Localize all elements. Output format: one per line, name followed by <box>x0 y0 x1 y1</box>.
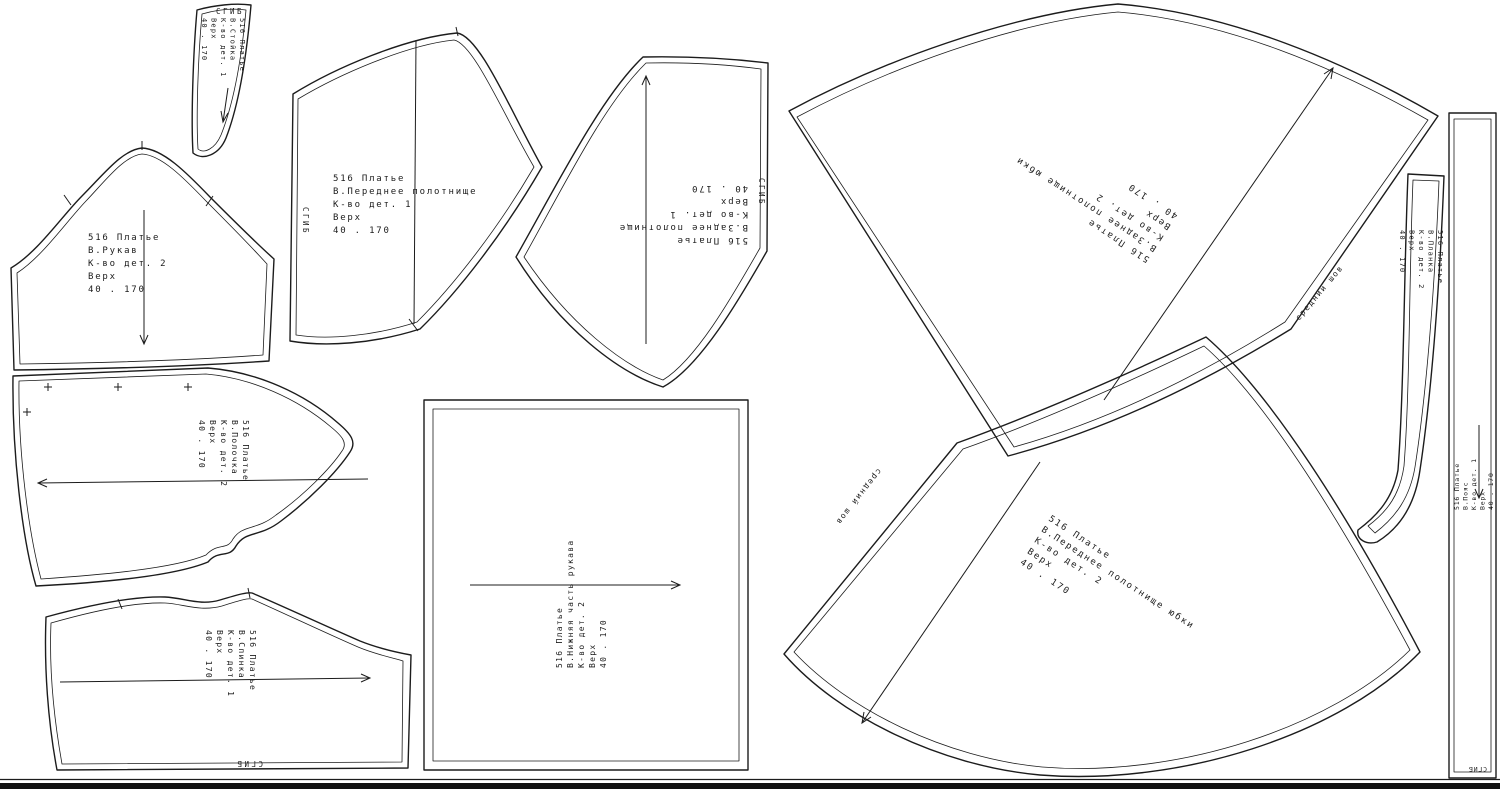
piece-label-line: 40 . 170 <box>197 420 206 469</box>
pattern-piece-stoika: СГИБ 516 Платье В.Стойка К-во дет. 1 Вер… <box>192 4 251 156</box>
notch-mark <box>64 195 71 205</box>
piece-label-line: В.Пояс <box>1462 482 1470 510</box>
notch-mark <box>409 319 418 331</box>
piece-label-line: Верх <box>88 272 117 282</box>
piece-label-line: В.Спинка <box>237 630 246 679</box>
piece-label-line: 516 Платье <box>555 607 564 668</box>
center-seam-label-group: средний шов <box>1294 263 1346 322</box>
plus-mark <box>114 383 122 391</box>
piece-label-line: К-во дет. 1 <box>333 200 412 210</box>
piece-label-line: Верх <box>208 420 217 444</box>
grain-line-arrow <box>140 210 148 344</box>
piece-label-line: К-во дет. 2 <box>577 601 586 668</box>
fold-label-group: СГИБ <box>1468 765 1487 773</box>
piece-label-line: К-во дет. 2 <box>88 259 167 269</box>
seam-line <box>19 374 344 579</box>
piece-label-line: 40 . 170 <box>599 619 608 668</box>
piece-label: 516 Платье В.Рукав К-во дет. 2 Верх 40 .… <box>88 233 167 295</box>
pattern-piece-perednee: СГИБ 516 Платье В.Переднее полотнище К-в… <box>290 27 542 344</box>
plus-mark <box>44 383 52 391</box>
piece-label-line: 516 Платье <box>241 420 250 481</box>
piece-label-line: 40 . 170 <box>204 630 213 679</box>
seam-line <box>1454 119 1491 772</box>
center-seam-label: средний шов <box>1294 263 1346 322</box>
fold-label: СГИБ <box>301 207 310 235</box>
grain-line-arrow <box>642 76 650 344</box>
grain-line-arrow <box>862 462 1040 723</box>
piece-label-line: 516 Платье <box>238 18 246 72</box>
piece-label: 516 Платье В.Заднее полотнище юбки К-во … <box>1007 121 1180 263</box>
piece-label: 516 Платье В.Переднее полотнище К-во дет… <box>333 174 477 236</box>
piece-label-line: Верх <box>1408 230 1416 252</box>
grain-line-arrow <box>470 581 680 589</box>
piece-label-line: К-во дет. 2 <box>219 420 228 487</box>
piece-label-line: 516 Платье <box>1436 230 1444 284</box>
piece-label-line: К-во дет. 2 <box>1417 230 1425 290</box>
pattern-piece-rukav: 516 Платье В.Рукав К-во дет. 2 Верх 40 .… <box>11 141 274 370</box>
piece-label-line: Верх <box>719 196 748 206</box>
piece-label-line: 40 . 170 <box>1398 230 1406 273</box>
plus-mark <box>23 408 31 416</box>
piece-label-line: К-во дет. 1 <box>1470 458 1478 510</box>
piece-label-line: В.Переднее полотнище юбки <box>1039 524 1196 632</box>
cut-line <box>1449 113 1496 778</box>
piece-label-line: 40 . 170 <box>1487 472 1495 510</box>
pattern-piece-planka: 516 Платье В.Планка К-во дет. 2 Верх 40 … <box>1358 174 1444 543</box>
plus-mark <box>184 383 192 391</box>
piece-label-line: 516 Платье <box>248 630 257 691</box>
piece-label-line: К-во дет. 1 <box>669 209 748 219</box>
piece-label-line: В.Полочка <box>230 420 239 475</box>
pattern-piece-poyas: СГИБ 516 Платье В.Пояс К-во дет. 1 Верх … <box>1449 113 1496 778</box>
piece-label: 516 Платье В.Переднее полотнище юбки К-в… <box>1018 514 1203 664</box>
piece-label-line: В.Переднее полотнище <box>333 187 477 197</box>
piece-label-line: 516 Платье <box>1453 463 1461 510</box>
fold-label-group: СГИБ <box>757 178 766 206</box>
piece-label-line: В.Стойка <box>229 18 237 61</box>
cut-line <box>13 368 353 586</box>
center-seam-label-group: средний шов <box>834 467 884 527</box>
piece-label: 516 Платье В.Пояс К-во дет. 1 Верх 40 . … <box>1453 458 1495 510</box>
piece-label: 516 Платье В.Спинка К-во дет. 1 Верх 40 … <box>204 630 257 697</box>
bottom-bar <box>0 783 1500 789</box>
center-line <box>414 40 416 324</box>
fold-label: СГИБ <box>1468 765 1487 773</box>
cut-line <box>516 57 768 387</box>
piece-label-line: В.Заднее полотнище <box>618 222 748 232</box>
piece-label-line: В.Нижняя часть рукава <box>566 540 575 668</box>
grain-line-arrow <box>60 674 370 682</box>
piece-label-line: 40 . 170 <box>88 285 146 295</box>
seam-line <box>797 12 1428 447</box>
pattern-layout-page: СГИБ 516 Платье В.Стойка К-во дет. 1 Вер… <box>0 0 1500 789</box>
piece-label-line: Верх <box>1479 491 1487 510</box>
grain-line-arrow <box>38 479 368 487</box>
piece-label-line: 40 . 170 <box>690 183 748 193</box>
seam-line <box>524 63 761 380</box>
piece-label: 516 Платье В.Полочка К-во дет. 2 Верх 40… <box>197 420 250 487</box>
piece-label: 516 Платье В.Нижняя часть рукава К-во де… <box>555 540 608 668</box>
pattern-piece-perednee-yubki: средний шов 516 Платье В.Переднее полотн… <box>784 337 1420 776</box>
fold-label: СГИБ <box>757 178 766 206</box>
piece-label-line: 40 . 170 <box>200 18 208 61</box>
fold-label-group: СГИБ <box>235 759 263 768</box>
piece-label-line: 516 Платье <box>676 235 748 245</box>
piece-label-line: В.Заднее полотнище юбки <box>1013 154 1158 254</box>
piece-label-line: К-во дет. 1 <box>219 18 227 78</box>
piece-label: 516 Платье В.Заднее полотнище К-во дет. … <box>618 183 748 245</box>
center-seam-label: средний шов <box>834 467 884 527</box>
pattern-piece-polochka: 516 Платье В.Полочка К-во дет. 2 Верх 40… <box>13 368 368 586</box>
fold-label-group: СГИБ <box>301 207 310 235</box>
piece-label-line: В.Рукав <box>88 246 139 256</box>
pattern-piece-spinka: СГИБ 516 Платье В.Спинка К-во дет. 1 Вер… <box>45 588 411 770</box>
fold-label: СГИБ <box>216 7 244 16</box>
notch-mark <box>456 27 458 36</box>
piece-label-line: Верх <box>210 18 218 40</box>
piece-label-line: Верх <box>215 630 224 654</box>
piece-label-line: 516 Платье <box>88 233 160 243</box>
piece-label-line: К-во дет. 1 <box>226 630 235 697</box>
pattern-piece-nizhnyaya: 516 Платье В.Нижняя часть рукава К-во де… <box>424 400 748 770</box>
piece-label: 516 Платье В.Стойка К-во дет. 1 Верх 40 … <box>200 18 246 78</box>
pattern-canvas: СГИБ 516 Платье В.Стойка К-во дет. 1 Вер… <box>0 0 1500 789</box>
piece-label-line: 40 . 170 <box>333 226 391 236</box>
pattern-piece-zadnee: СГИБ 516 Платье В.Заднее полотнище К-во … <box>516 57 768 387</box>
piece-label-line: Верх <box>588 644 597 668</box>
piece-label-line: Верх <box>333 213 362 223</box>
piece-label-line: В.Планка <box>1427 230 1435 273</box>
fold-label: СГИБ <box>235 759 263 768</box>
piece-label-line: 516 Платье <box>333 174 405 184</box>
